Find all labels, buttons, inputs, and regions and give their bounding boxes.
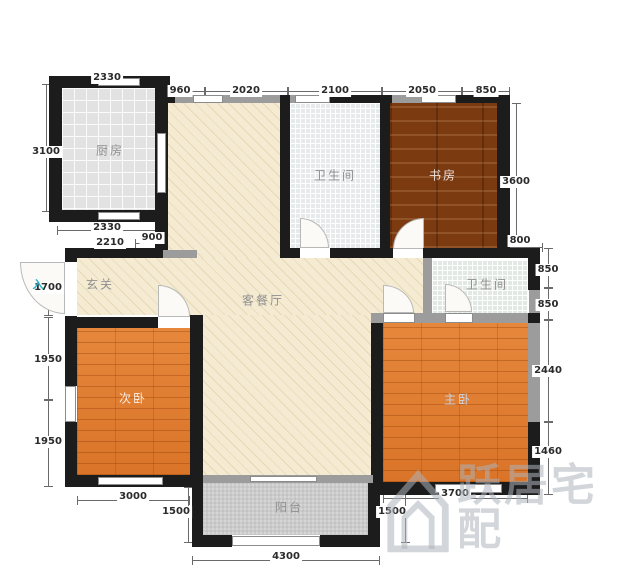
room-label-hall: 玄关 — [86, 276, 114, 293]
dim-label: 800 — [508, 235, 533, 247]
second-bedroom-left-window — [65, 386, 76, 422]
kitchen-sliding-door — [157, 133, 166, 193]
second-bedroom-right-wall — [190, 315, 203, 487]
balcony-left-wall — [192, 475, 203, 543]
master-top-right-corner — [528, 313, 540, 323]
room-label-bathroom-right: 卫生间 — [466, 276, 508, 293]
bathroom-right-left-wall — [423, 258, 432, 313]
dim-label: 1950 — [32, 436, 64, 448]
entry-arrow-mark: 入 — [33, 276, 44, 292]
dim-label: 2050 — [406, 85, 438, 97]
bathroom-right-door-gap — [445, 313, 473, 323]
bathroom-study-wall — [380, 95, 390, 258]
dim-label: 3100 — [30, 146, 62, 158]
dim-label: 1500 — [376, 506, 408, 518]
dim-label: 2100 — [319, 85, 351, 97]
living-top-window — [193, 95, 223, 103]
dim-label: 850 — [536, 264, 561, 276]
hall-top-wall — [65, 248, 163, 258]
master-door-gap — [383, 313, 415, 323]
kitchen-left-wall — [49, 76, 62, 212]
second-bedroom-bottom-window — [98, 477, 163, 485]
dim-label: 960 — [168, 85, 193, 97]
dim-label: 3700 — [439, 488, 471, 500]
dim-label: 850 — [474, 85, 499, 97]
dim-label: 2020 — [230, 85, 262, 97]
room-label-balcony: 阳台 — [275, 499, 303, 516]
dim-label: 1460 — [532, 446, 564, 458]
bathroom-top-left-wall — [280, 95, 290, 258]
dim-line-1460 — [548, 422, 549, 495]
room-label-bathroom-top: 卫生间 — [314, 167, 356, 184]
dim-label: 1500 — [160, 506, 192, 518]
dim-label: 2440 — [532, 365, 564, 377]
second-bedroom-top-wall — [65, 317, 158, 328]
balcony-bottom-window — [232, 536, 320, 546]
balcony-sliding-door — [250, 476, 317, 482]
dim-label: 1950 — [32, 354, 64, 366]
dim-label: 2330 — [91, 72, 123, 84]
room-label-study: 书房 — [429, 167, 457, 184]
kitchen-bottom-window — [98, 212, 140, 220]
living-floor-upper — [168, 103, 280, 258]
bathroom-right-top-wall — [423, 248, 532, 258]
dim-label: 3000 — [117, 491, 149, 503]
master-left-wall — [371, 313, 383, 495]
room-label-kitchen: 厨房 — [96, 142, 124, 159]
dim-label: 3600 — [500, 176, 532, 188]
balcony-bottom-wall-left — [192, 535, 232, 547]
dim-label: 900 — [140, 232, 165, 244]
room-label-master-bedroom: 主卧 — [444, 391, 472, 408]
room-label-second-bedroom: 次卧 — [119, 390, 147, 407]
dim-label: 4300 — [270, 551, 302, 563]
dim-label: 2330 — [91, 222, 123, 234]
dim-label: 2210 — [94, 237, 126, 249]
dim-label: 850 — [536, 299, 561, 311]
balcony-bottom-wall-right — [320, 535, 380, 547]
living-floor-lower — [203, 315, 371, 483]
left-wall-corner — [65, 248, 77, 262]
mid-wall-seg2 — [330, 248, 393, 258]
room-label-living: 客餐厅 — [242, 292, 284, 309]
hall-top-halfwall — [163, 250, 197, 258]
mid-wall-seg1 — [280, 248, 300, 258]
floor-plan: 2330 960 2020 2100 2050 850 3100 2330 90… — [0, 0, 640, 584]
